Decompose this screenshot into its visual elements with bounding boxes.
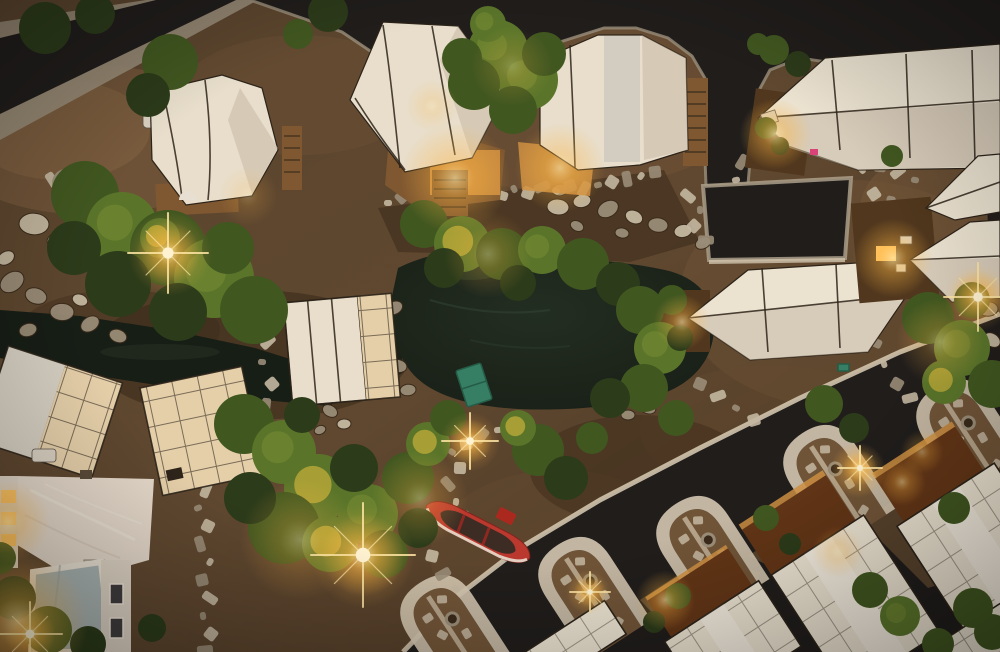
vignette: [0, 0, 1000, 652]
photo-stage: [0, 0, 1000, 652]
aerial-photo: [0, 0, 1000, 652]
